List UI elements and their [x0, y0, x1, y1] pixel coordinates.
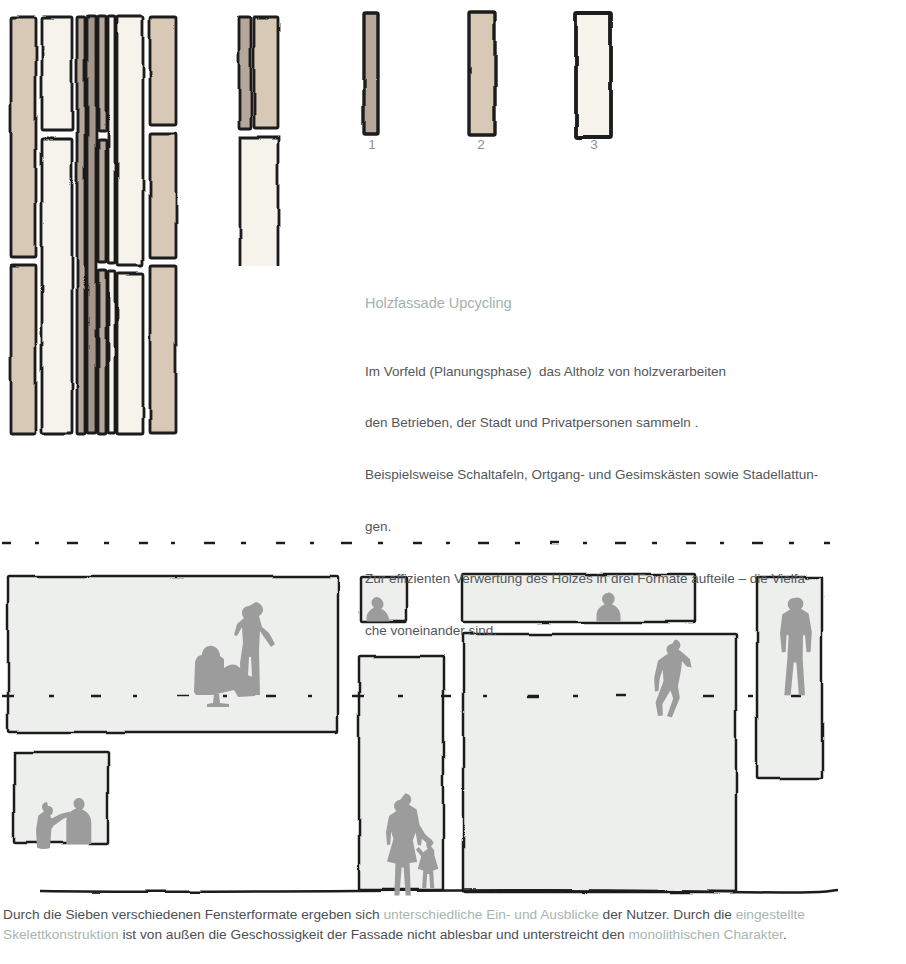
facade-plank: [108, 272, 115, 433]
paragraph-line: Zur effizienten Verwertung des Holzes in…: [365, 570, 818, 587]
page: 1 2 3 Holzfassade Upcycling Im Vorfeld (…: [0, 0, 906, 964]
format-label-3: 3: [581, 137, 607, 152]
caption-line: Skelettkonstruktion ist von außen die Ge…: [3, 925, 903, 945]
section-heading: Holzfassade Upcycling: [365, 295, 512, 311]
facade-plank: [98, 271, 106, 434]
facade-plank: [117, 274, 143, 434]
paragraph-line: den Betrieben, der Stadt und Privatperso…: [365, 414, 818, 431]
facade-plank: [11, 265, 36, 434]
section-paragraph: Im Vorfeld (Planungsphase) das Altholz v…: [365, 328, 818, 674]
paragraph-line: Beispielsweise Schaltafeln, Ortgang- und…: [365, 466, 818, 483]
format-label-1: 1: [359, 137, 385, 152]
plank-format-sample: [364, 14, 378, 134]
facade-plank: [11, 17, 36, 257]
window-large-left: [8, 576, 338, 732]
format-label-2: 2: [468, 137, 494, 152]
caption-text: .: [783, 927, 787, 942]
caption-text: der Nutzer. Durch die: [599, 907, 736, 922]
caption-text: ist von außen die Geschossigkeit der Fas…: [119, 927, 629, 942]
caption: Durch die Sieben verschiedenen Fensterfo…: [3, 905, 903, 944]
plank-format-sample: [469, 13, 495, 135]
caption-line: Durch die Sieben verschiedenen Fensterfo…: [3, 905, 903, 925]
facade-plank: [239, 17, 251, 129]
window-square-bottom-left: [14, 752, 108, 843]
paragraph-line: gen.: [365, 518, 818, 535]
facade-plank: [108, 17, 115, 264]
caption-text: Durch die Sieben verschiedenen Fensterfo…: [3, 907, 383, 922]
facade-plank: [98, 17, 106, 130]
facade-plank: [87, 17, 96, 433]
facade-plank: [42, 139, 72, 433]
facade-plank: [98, 139, 106, 263]
caption-accent-text: unterschiedliche Ein- und Ausblicke: [383, 907, 598, 922]
caption-accent-text: eingestellte: [736, 907, 805, 922]
facade-plank: [77, 17, 85, 434]
facade-plank: [254, 17, 278, 129]
facade-plank: [42, 17, 72, 130]
caption-accent-text: Skelettkonstruktion: [3, 927, 119, 942]
facade-plank: [117, 17, 143, 266]
facade-plank: [150, 266, 176, 433]
paragraph-line: che voneinander sind.: [365, 622, 818, 639]
facade-plank: [150, 133, 176, 258]
facade-plank: [150, 17, 176, 124]
facade-plank-pattern: [11, 17, 278, 434]
paragraph-line: Im Vorfeld (Planungsphase) das Altholz v…: [365, 363, 818, 380]
facade-plank-open: [240, 138, 278, 266]
plank-format-sample: [576, 13, 611, 137]
plank-format-samples: [364, 13, 611, 137]
caption-accent-text: monolithischen Charakter: [628, 927, 782, 942]
